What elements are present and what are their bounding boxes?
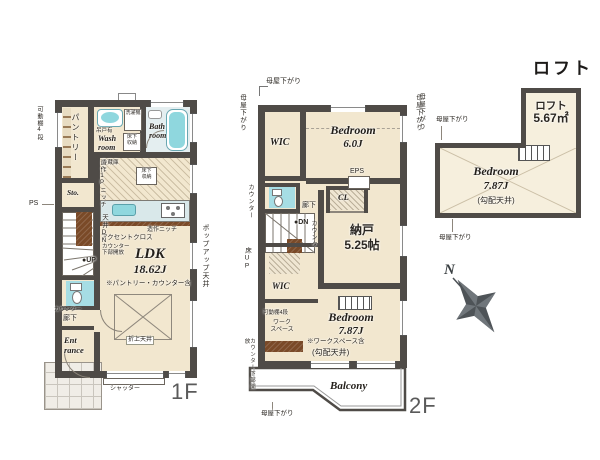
f2-storage-name: 納戸 [322,224,402,238]
f2-bedroom7-size: 7.87J [302,325,400,338]
f2-movable-shelf-label: 可動棚4段 [263,310,288,316]
f1-floor-label: 1F [171,379,199,404]
toilet2-bowl-icon [274,196,283,207]
f1-entrance-label: Ent rance [64,336,84,356]
compass-north-label: N [443,262,456,278]
f2-wall-cl-left [326,186,330,213]
f2-window-bed6 [400,115,407,143]
f2-window-balcony1 [310,361,350,368]
f2-wall-left [258,105,265,368]
f2-moya-top-label: 母屋下がり [266,78,301,86]
f1-door-gap [94,310,100,332]
loft-bedroom-name: Bedroom [440,165,552,179]
f1-window-ldk1 [190,242,197,270]
f2-wall-storage-bottom [318,283,407,289]
f1-window-pantry [55,112,62,148]
f1-window-ldk2 [190,300,197,348]
f2-moya-bottom-label: 母屋下がり [261,410,294,417]
f2-bedroom6-name: Bedroom [306,124,400,138]
loft-moya-bottom-label: 母屋下がり [439,234,472,241]
f1-accent-cloth-label: アクセントクロス [101,234,153,241]
f2-counter-stairs-label: カウンター [310,220,316,272]
f2-moya-arrow [259,86,268,96]
f2-wic-upper-label: WIC [270,137,289,149]
f2-moya-bottom-tick [272,402,273,410]
f2-sloped-ceiling-label: (勾配天井) [312,348,349,357]
loft-wall-top [521,88,581,93]
f1-window-kitchen [190,164,197,194]
f2-wall-cl-right [364,186,368,213]
f2-eps-label: EPS [350,168,364,176]
stairs-1f-wood [76,212,92,246]
f2-window-top [330,105,366,112]
f2-bedroom6-size: 6.0J [306,138,400,151]
stove-icon [161,203,185,218]
f2-hallway-label: 廊下 [302,202,316,210]
f1-wall-toprow [94,152,197,158]
f2-storage-size: 5.25帖 [322,239,402,253]
f1-folded-ceiling-label: 折上天井 [126,336,154,345]
eps-shaft-box [348,176,370,189]
f2-moya-left-label: 母屋下がり [238,94,245,148]
f2-floor-up-label: 床UP [243,247,250,277]
f1-movable-shelf-label: 可動棚4段 [36,106,42,168]
f1-wall-toilet-top [62,276,98,280]
loft-wall-bottom [435,213,581,218]
loft-sloped-ceiling-label: (勾配天井) [440,196,552,205]
f2-wall-toilet-bottom [265,209,300,213]
f2-floor-label: 2F [409,393,437,418]
loft-ladder-icon [338,296,372,310]
toilet-tank-icon [70,283,82,291]
f1-wall-sto-bottom [55,207,94,212]
loft-moya-corner-tick [441,126,442,140]
f2-workspace-label: ワーク スペース [265,320,299,334]
f2-wall-wic-bottom [265,176,306,181]
loft-moya-corner-label: 母屋下がり [436,116,469,123]
f2-counter-toilet-label: カウンター [247,184,253,220]
f1-washer-label: 洗濯機 [125,111,141,117]
kitchen-sink-icon [112,204,136,216]
f1-window-ldk-south2 [168,371,186,378]
f1-window-ldk-south [106,371,164,378]
bathtub-water-icon [169,112,185,148]
f2-bedroom7-name: Bedroom [302,311,400,325]
f1-bathroom-label: Bath room [149,122,166,140]
f1-window-bath-right [190,113,197,143]
pantry-shelves-icon [63,108,71,178]
wash-sink-bowl-icon [101,112,119,123]
shower-counter-icon [148,110,162,119]
compass-rose-icon: N [436,252,514,344]
f1-ps-label: PS [29,200,38,208]
f1-popup-ceiling-label: ポップアップ天井 [202,224,209,310]
f2-cl-door [330,211,364,213]
f2-dn-label: ●DN [294,219,308,227]
f2-counter-open-label: カウンター下部開放 [243,338,254,396]
f2-wall-wic2-bottom [265,299,318,303]
folded-ceiling-cross [114,294,172,340]
f2-wic-lower-label: WIC [272,281,290,291]
loft-bedroom-size: 7.87J [440,180,552,193]
f2-window-bed7 [400,300,407,336]
f1-underfloor-wash-label: 床下 収納 [124,135,140,147]
f1-washroom-label: Wash room [98,134,116,152]
loft-wall-top2 [435,143,525,148]
f1-ldk-note: ※パントリー・カウンター含 [106,280,191,287]
floor-plan: 可動棚4段 パントリー 吊戸有 Wash room 洗濯機 床下 収納 Bath… [0,0,600,460]
loft-moya-bottom-tick [452,219,453,232]
loft-size: 5.67㎡ [526,112,576,126]
f2-cl-label: CL [338,193,349,203]
f1-shutter-label: シャッター [110,386,140,393]
stove-burners-icon [166,206,170,210]
shutter-box [103,378,165,385]
loft-wall-right [576,88,581,218]
f1-underfloor-kitchen-label: 床下 収納 [137,169,156,181]
f1-ldk-size: 18.62J [118,263,182,277]
f1-niche-label: 造作ニッチ [147,227,177,234]
f1-ldk-name: LDK [118,246,182,263]
loft-moya-left-label: 母屋下がり [417,93,424,145]
f1-hallway-label: 廊下 [63,315,77,323]
loft-title: ロフト [533,59,593,79]
f2-bedroom7-note: ※ワークスペース含 [307,338,365,345]
f1-sto-label: Sto. [67,189,79,198]
f2-wall-toilet-top [265,183,300,187]
f1-up-label: ●UP [82,257,96,265]
f1-window-bath-top [150,100,184,107]
toilet-bowl-icon [72,291,82,304]
balcony-outline [244,364,410,416]
f2-balcony-label: Balcony [330,380,367,393]
toilet2-tank-icon [272,189,282,196]
f1-ps-tick [42,204,54,205]
f1-p-niche-label: 造作1Pニッチ [99,159,105,211]
f1-counter-label: カウンター [54,307,82,313]
workspace-desk-icon [265,341,303,352]
f2-window-balcony2 [356,361,396,368]
kitchen-counter-front [100,222,190,226]
f1-pantry-label: パントリー [71,113,79,181]
